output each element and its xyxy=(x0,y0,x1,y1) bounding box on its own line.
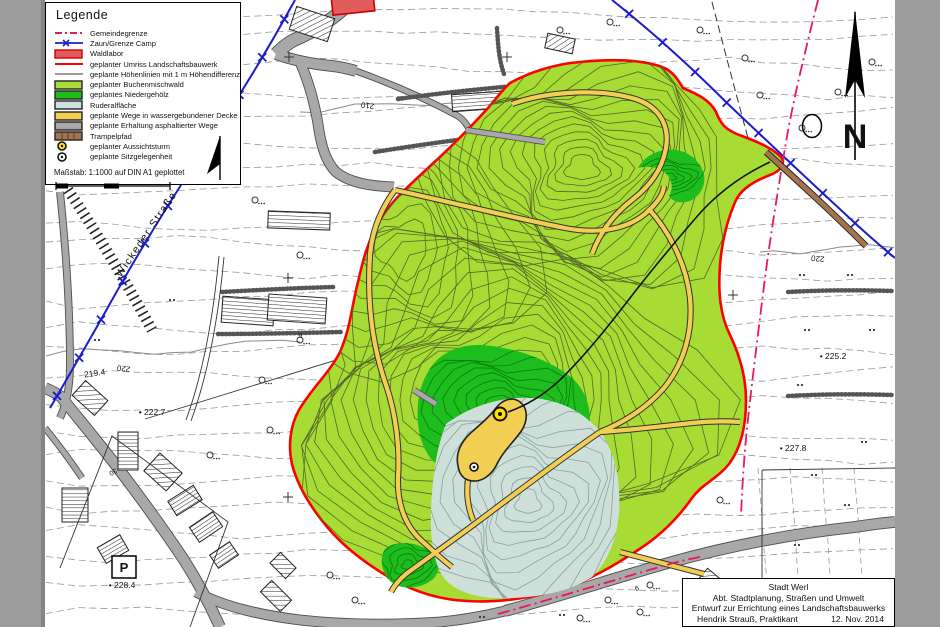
legend-label: geplante Sitzgelegenheit xyxy=(90,152,172,161)
title-author: Hendrik Strauß, Praktikant xyxy=(697,614,798,625)
legend-label: geplante Erhaltung asphaltierter Wege xyxy=(90,121,218,130)
aussichtsturm-icon xyxy=(494,408,507,421)
plotted-map-sheet: { "frame": { "side_bar_color": "#9b9b9b"… xyxy=(0,0,940,627)
legend-item-0: Gemeindegrenze xyxy=(54,28,240,38)
legend-swatch-rect-hatch-icon xyxy=(54,131,84,141)
legend-item-9: geplante Erhaltung asphaltierter Wege xyxy=(54,121,240,131)
map-label: • 225.2 xyxy=(820,351,847,361)
right-margin-bar xyxy=(895,0,940,627)
legend-item-8: geplante Wege in wassergebundener Decke xyxy=(54,110,240,120)
title-city: Stadt Werl xyxy=(683,582,894,593)
legend-label: Ruderalfläche xyxy=(90,101,136,110)
scale-bar xyxy=(54,181,184,191)
title-block: Stadt Werl Abt. Stadtplanung, Straßen un… xyxy=(682,578,895,627)
legend-north-arrow-icon xyxy=(198,134,232,182)
legend-label: geplante Wege in wassergebundener Decke xyxy=(90,111,237,120)
legend-swatch-rect-icon xyxy=(54,49,84,59)
map-label: 210 xyxy=(360,100,375,111)
legend-title: Legende xyxy=(56,8,240,22)
legend-swatch-rect-icon xyxy=(54,80,84,90)
legend-item-5: geplanter Buchenmischwald xyxy=(54,79,240,89)
legend-label: geplante Höhenlinien mit 1 m Höhendiffer… xyxy=(90,70,240,79)
legend-item-6: geplantes Niedergehölz xyxy=(54,90,240,100)
legend-label: geplantes Niedergehölz xyxy=(90,90,169,99)
legend-label: Trampelpfad xyxy=(90,132,132,141)
legend-item-3: geplanter Umriss Landschaftsbauwerk xyxy=(54,59,240,69)
map-label: • 228.4 xyxy=(109,580,136,590)
legend-box: Legende GemeindegrenzeZaun/Grenze CampWa… xyxy=(45,2,241,185)
map-label: • 222.7 xyxy=(139,407,166,417)
legend-swatch-x-line-icon xyxy=(54,38,84,48)
legend-swatch-circle-icon xyxy=(54,152,84,162)
title-project: Entwurf zur Errichtung eines Landschafts… xyxy=(683,603,894,614)
legend-label: geplanter Umriss Landschaftsbauwerk xyxy=(90,60,218,69)
legend-swatch-rect-icon xyxy=(54,100,84,110)
legend-swatch-line-icon xyxy=(54,59,84,69)
legend-item-1: Zaun/Grenze Camp xyxy=(54,38,240,48)
legend-swatch-dashdot-line-icon xyxy=(54,28,84,38)
legend-item-7: Ruderalfläche xyxy=(54,100,240,110)
legend-label: geplanter Aussichtsturm xyxy=(90,142,170,151)
title-dept: Abt. Stadtplanung, Straßen und Umwelt xyxy=(683,593,894,604)
legend-swatch-line-icon xyxy=(54,69,84,79)
legend-item-4: geplante Höhenlinien mit 1 m Höhendiffer… xyxy=(54,69,240,79)
left-margin-bar xyxy=(0,0,45,627)
legend-swatch-circle-icon xyxy=(54,141,84,151)
legend-label: Gemeindegrenze xyxy=(90,29,148,38)
title-date: 12. Nov. 2014 xyxy=(831,614,884,625)
north-letter: N xyxy=(843,118,868,156)
legend-label: Zaun/Grenze Camp xyxy=(90,39,156,48)
legend-item-2: Waldlabor xyxy=(54,49,240,59)
map-label: 220 xyxy=(810,253,825,263)
legend-swatch-rect-icon xyxy=(54,111,84,121)
map-label: P xyxy=(120,560,129,575)
sitzgelegenheit-icon xyxy=(470,463,478,471)
legend-label: geplanter Buchenmischwald xyxy=(90,80,184,89)
map-label: • 227.8 xyxy=(780,443,807,453)
legend-label: Waldlabor xyxy=(90,49,124,58)
map-label: 220 xyxy=(116,363,131,374)
legend-swatch-rect-icon xyxy=(54,90,84,100)
legend-swatch-rect-icon xyxy=(54,121,84,131)
